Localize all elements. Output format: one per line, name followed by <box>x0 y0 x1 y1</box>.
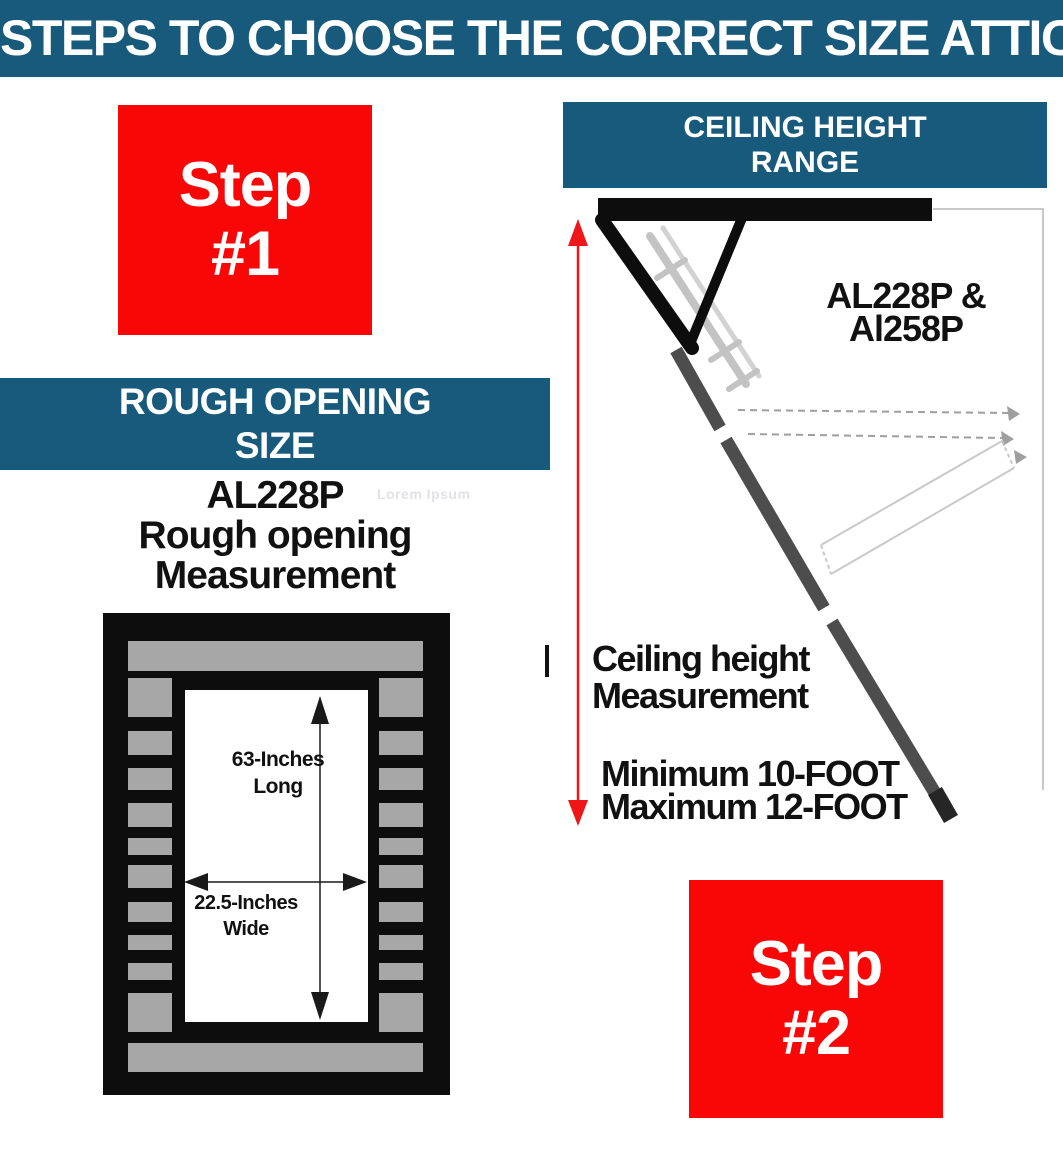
ceiling-height-banner: CEILING HEIGHT RANGE <box>563 102 1047 188</box>
joist-block <box>128 993 172 1032</box>
arrow-up-icon <box>568 219 588 246</box>
step1-badge: Step #1 <box>118 105 372 335</box>
header-board-bottom <box>128 1043 423 1072</box>
joist-block <box>128 803 172 827</box>
ceiling-measure-line2: Measurement <box>592 677 809 714</box>
ceiling-board <box>598 198 932 221</box>
ceiling-measure-line1: Ceiling height <box>592 640 809 677</box>
opening-area <box>185 690 368 1022</box>
ghost-rail-end-cap <box>821 545 831 574</box>
arrow-right-icon <box>1014 450 1027 464</box>
step1-number: #1 <box>211 220 279 289</box>
rough-opening-subtitle-line1: Rough opening <box>0 516 550 556</box>
joist-block <box>128 935 172 950</box>
dashed-guide-line <box>748 434 1002 438</box>
rough-opening-subtitle-line2: Measurement <box>0 556 550 596</box>
joist-block <box>379 865 423 888</box>
ghost-rail-edge <box>821 441 1002 545</box>
ladder-models-label: AL228P & Al258P <box>775 279 1037 345</box>
joist-block <box>379 768 423 790</box>
height-range-line2: Maximum 12-FOOT <box>601 790 907 823</box>
step2-badge: Step #2 <box>689 880 943 1118</box>
page-title: STEPS TO CHOOSE THE CORRECT SIZE ATTIC <box>0 0 1063 77</box>
rail-foot-tip <box>935 791 951 819</box>
width-label-line2: Wide <box>223 918 269 940</box>
step1-label: Step <box>179 151 312 220</box>
height-range-label: Minimum 10-FOOT Maximum 12-FOOT <box>601 757 907 823</box>
ladder-rail <box>676 350 951 819</box>
rail-segment-2 <box>726 440 824 608</box>
extension-dashed-guides <box>738 406 1020 446</box>
ghost-rail-edge <box>831 468 1014 574</box>
length-label-line2: Long <box>253 775 302 798</box>
rough-opening-banner-line2: SIZE <box>235 424 315 468</box>
joist-block <box>379 803 423 827</box>
attic-sizing-infographic: STEPS TO CHOOSE THE CORRECT SIZE ATTIC S… <box>0 0 1063 1150</box>
joist-block <box>128 838 172 855</box>
joist-block <box>379 935 423 950</box>
joist-block <box>379 838 423 855</box>
ceiling-measure-label: Ceiling height Measurement <box>592 640 809 714</box>
joist-block <box>128 768 172 790</box>
joist-block <box>128 731 172 755</box>
arrow-down-icon <box>568 800 588 826</box>
lorem-watermark: Lorem Ipsum <box>377 486 470 502</box>
ceiling-height-banner-line2: RANGE <box>751 145 859 180</box>
joist-block <box>379 678 423 717</box>
step2-label: Step <box>750 930 883 999</box>
step2-number: #2 <box>782 999 850 1068</box>
joist-block <box>128 902 172 922</box>
joist-blocks-left <box>128 678 172 1032</box>
rough-opening-diagram: 63-Inches Long 22.5-Inches Wide <box>103 613 450 1097</box>
joist-block <box>379 902 423 922</box>
joist-block <box>379 731 423 755</box>
arrow-right-icon <box>1007 406 1020 421</box>
joist-block <box>379 993 423 1032</box>
joist-block <box>128 678 172 717</box>
length-label-line1: 63-Inches <box>232 748 324 771</box>
dashed-guide-line <box>738 410 1008 413</box>
ceiling-height-banner-line1: CEILING HEIGHT <box>683 110 926 145</box>
joist-block <box>379 963 423 980</box>
height-measure-arrow <box>568 219 588 826</box>
joist-blocks-right <box>379 678 423 1032</box>
rough-opening-banner-line1: ROUGH OPENING <box>119 380 431 424</box>
rough-opening-banner: ROUGH OPENING SIZE <box>0 378 550 470</box>
joist-block <box>128 865 172 888</box>
ghost-rail-outline <box>821 441 1027 574</box>
width-label-line1: 22.5-Inches <box>194 892 298 914</box>
joist-block <box>128 963 172 980</box>
header-board-top <box>128 641 423 671</box>
ladder-models-line2: Al258P <box>775 312 1037 345</box>
